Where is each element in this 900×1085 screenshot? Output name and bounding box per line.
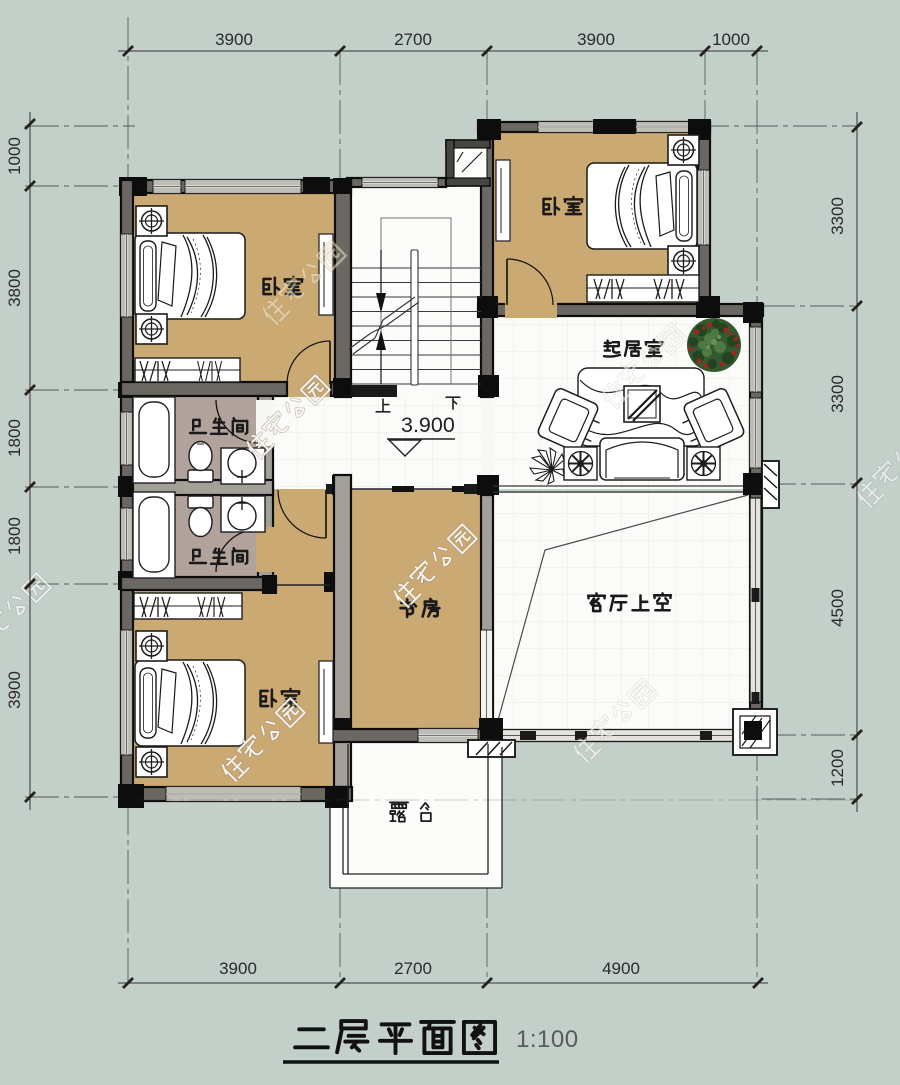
svg-text:1:100: 1:100 [516,1026,579,1053]
svg-text:4500: 4500 [828,589,847,627]
svg-text:3900: 3900 [219,959,257,978]
svg-text:1800: 1800 [5,517,24,555]
svg-text:3300: 3300 [828,197,847,235]
svg-text:1000: 1000 [712,30,750,49]
svg-text:3900: 3900 [215,30,253,49]
svg-text:3300: 3300 [828,375,847,413]
svg-text:2700: 2700 [394,30,432,49]
svg-text:1800: 1800 [5,419,24,457]
svg-text:3800: 3800 [5,269,24,307]
svg-text:4900: 4900 [602,959,640,978]
svg-text:1000: 1000 [5,137,24,175]
svg-text:3.900: 3.900 [401,413,455,437]
svg-text:3900: 3900 [5,671,24,709]
svg-text:1200: 1200 [828,749,847,787]
svg-text:3900: 3900 [577,30,615,49]
svg-text:2700: 2700 [394,959,432,978]
